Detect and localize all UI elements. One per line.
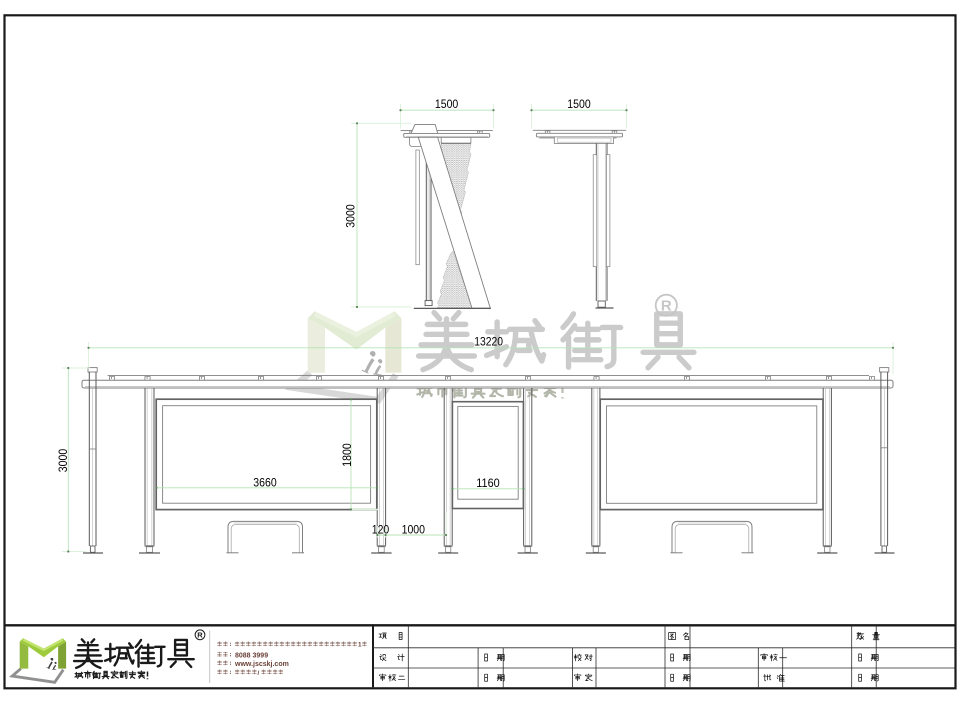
svg-text:R: R [197, 631, 203, 640]
svg-text:/: / [258, 670, 260, 677]
svg-text:3660: 3660 [253, 477, 276, 489]
svg-text:1500: 1500 [567, 99, 590, 111]
svg-text:1500: 1500 [435, 99, 458, 111]
svg-text:www.jscskj.com: www.jscskj.com [234, 661, 289, 668]
svg-text:3000: 3000 [58, 449, 70, 472]
svg-text:8088 3999: 8088 3999 [235, 652, 268, 659]
svg-text:1160: 1160 [476, 478, 499, 490]
svg-text:1000: 1000 [402, 524, 425, 536]
svg-text:120: 120 [372, 524, 390, 536]
svg-text:3000: 3000 [346, 204, 358, 227]
svg-text:1800: 1800 [342, 443, 354, 466]
svg-text:1: 1 [358, 642, 362, 649]
svg-text:R: R [661, 298, 672, 315]
svg-text:13220: 13220 [474, 337, 503, 349]
